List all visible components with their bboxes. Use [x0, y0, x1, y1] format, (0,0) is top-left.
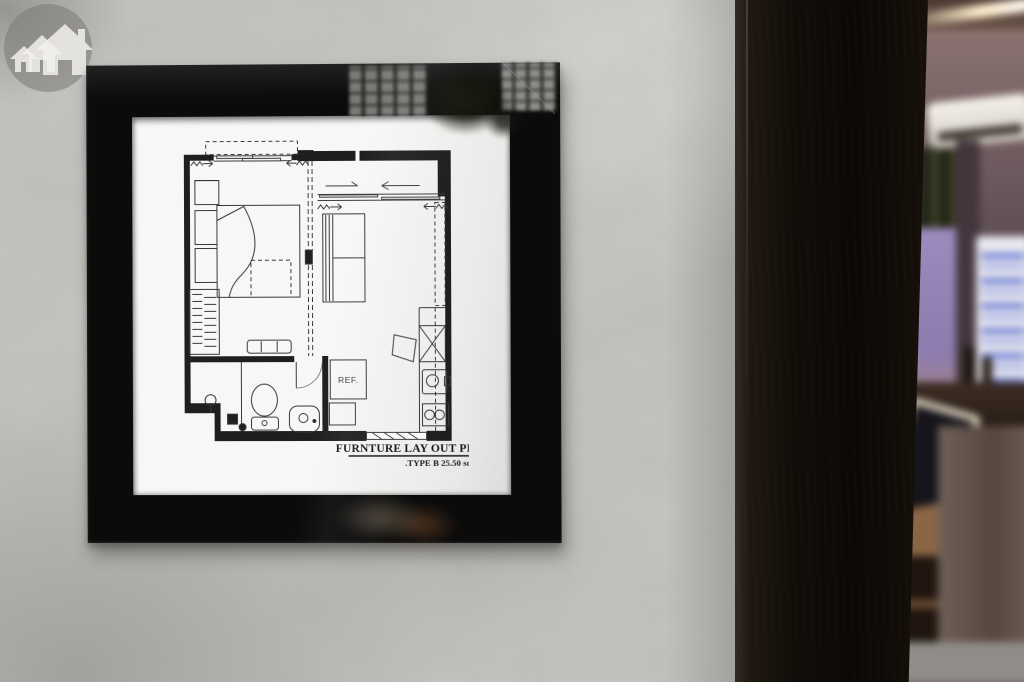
door-swing	[296, 362, 322, 388]
console	[247, 340, 291, 353]
ref-label: REF.	[338, 375, 358, 385]
building-reflection	[502, 62, 556, 111]
partition-handle	[305, 250, 312, 264]
walls	[184, 149, 452, 441]
bed-blanket	[229, 206, 255, 297]
wash-basin	[289, 406, 319, 432]
rug	[251, 260, 291, 297]
bedside-cabinet	[195, 248, 217, 282]
dining-chair	[392, 335, 416, 362]
frame-top-sheen	[86, 62, 560, 117]
slide-arrow	[352, 182, 358, 186]
houses-icon	[2, 2, 94, 94]
curtain-symbol	[191, 161, 213, 167]
wardrobe-hangers	[192, 294, 216, 346]
wardrobe	[189, 289, 219, 354]
building-reflection	[349, 65, 427, 116]
bed	[217, 205, 300, 297]
photo-of-framed-floor-plan: REF. FURNTURE LAY OUT PLAN .TYPE B 25.50…	[0, 0, 1024, 682]
floor-plan: REF. FURNTURE LAY OUT PLAN .TYPE B 25.50…	[176, 133, 469, 472]
curtain-symbol	[318, 204, 342, 210]
ac-vent	[937, 124, 1023, 142]
kitchen-sink	[422, 370, 446, 394]
floor-drain	[228, 414, 238, 424]
nightstand	[195, 181, 219, 205]
washer	[329, 403, 355, 425]
pillar-edge-highlight	[746, 0, 748, 430]
balcony-outline	[206, 141, 298, 155]
window-sash	[243, 158, 281, 161]
dark-pillar	[735, 0, 928, 682]
sliding-door-panel	[382, 197, 440, 199]
sliding-door-panel	[320, 195, 378, 197]
frame-mat: REF. FURNTURE LAY OUT PLAN .TYPE B 25.50…	[132, 115, 511, 495]
plan-title: FURNTURE LAY OUT PLAN	[336, 443, 469, 455]
frame-miter-seam	[500, 60, 555, 114]
plan-subtitle: .TYPE B 25.50 sqm	[405, 458, 469, 468]
curtain-symbol	[424, 203, 448, 209]
picture-frame: REF. FURNTURE LAY OUT PLAN .TYPE B 25.50…	[86, 62, 562, 543]
toilet	[251, 384, 277, 416]
warm-reflection	[335, 494, 427, 542]
warm-reflection	[387, 504, 459, 546]
bedside-cabinet	[195, 211, 217, 245]
closet-outline	[435, 202, 445, 305]
